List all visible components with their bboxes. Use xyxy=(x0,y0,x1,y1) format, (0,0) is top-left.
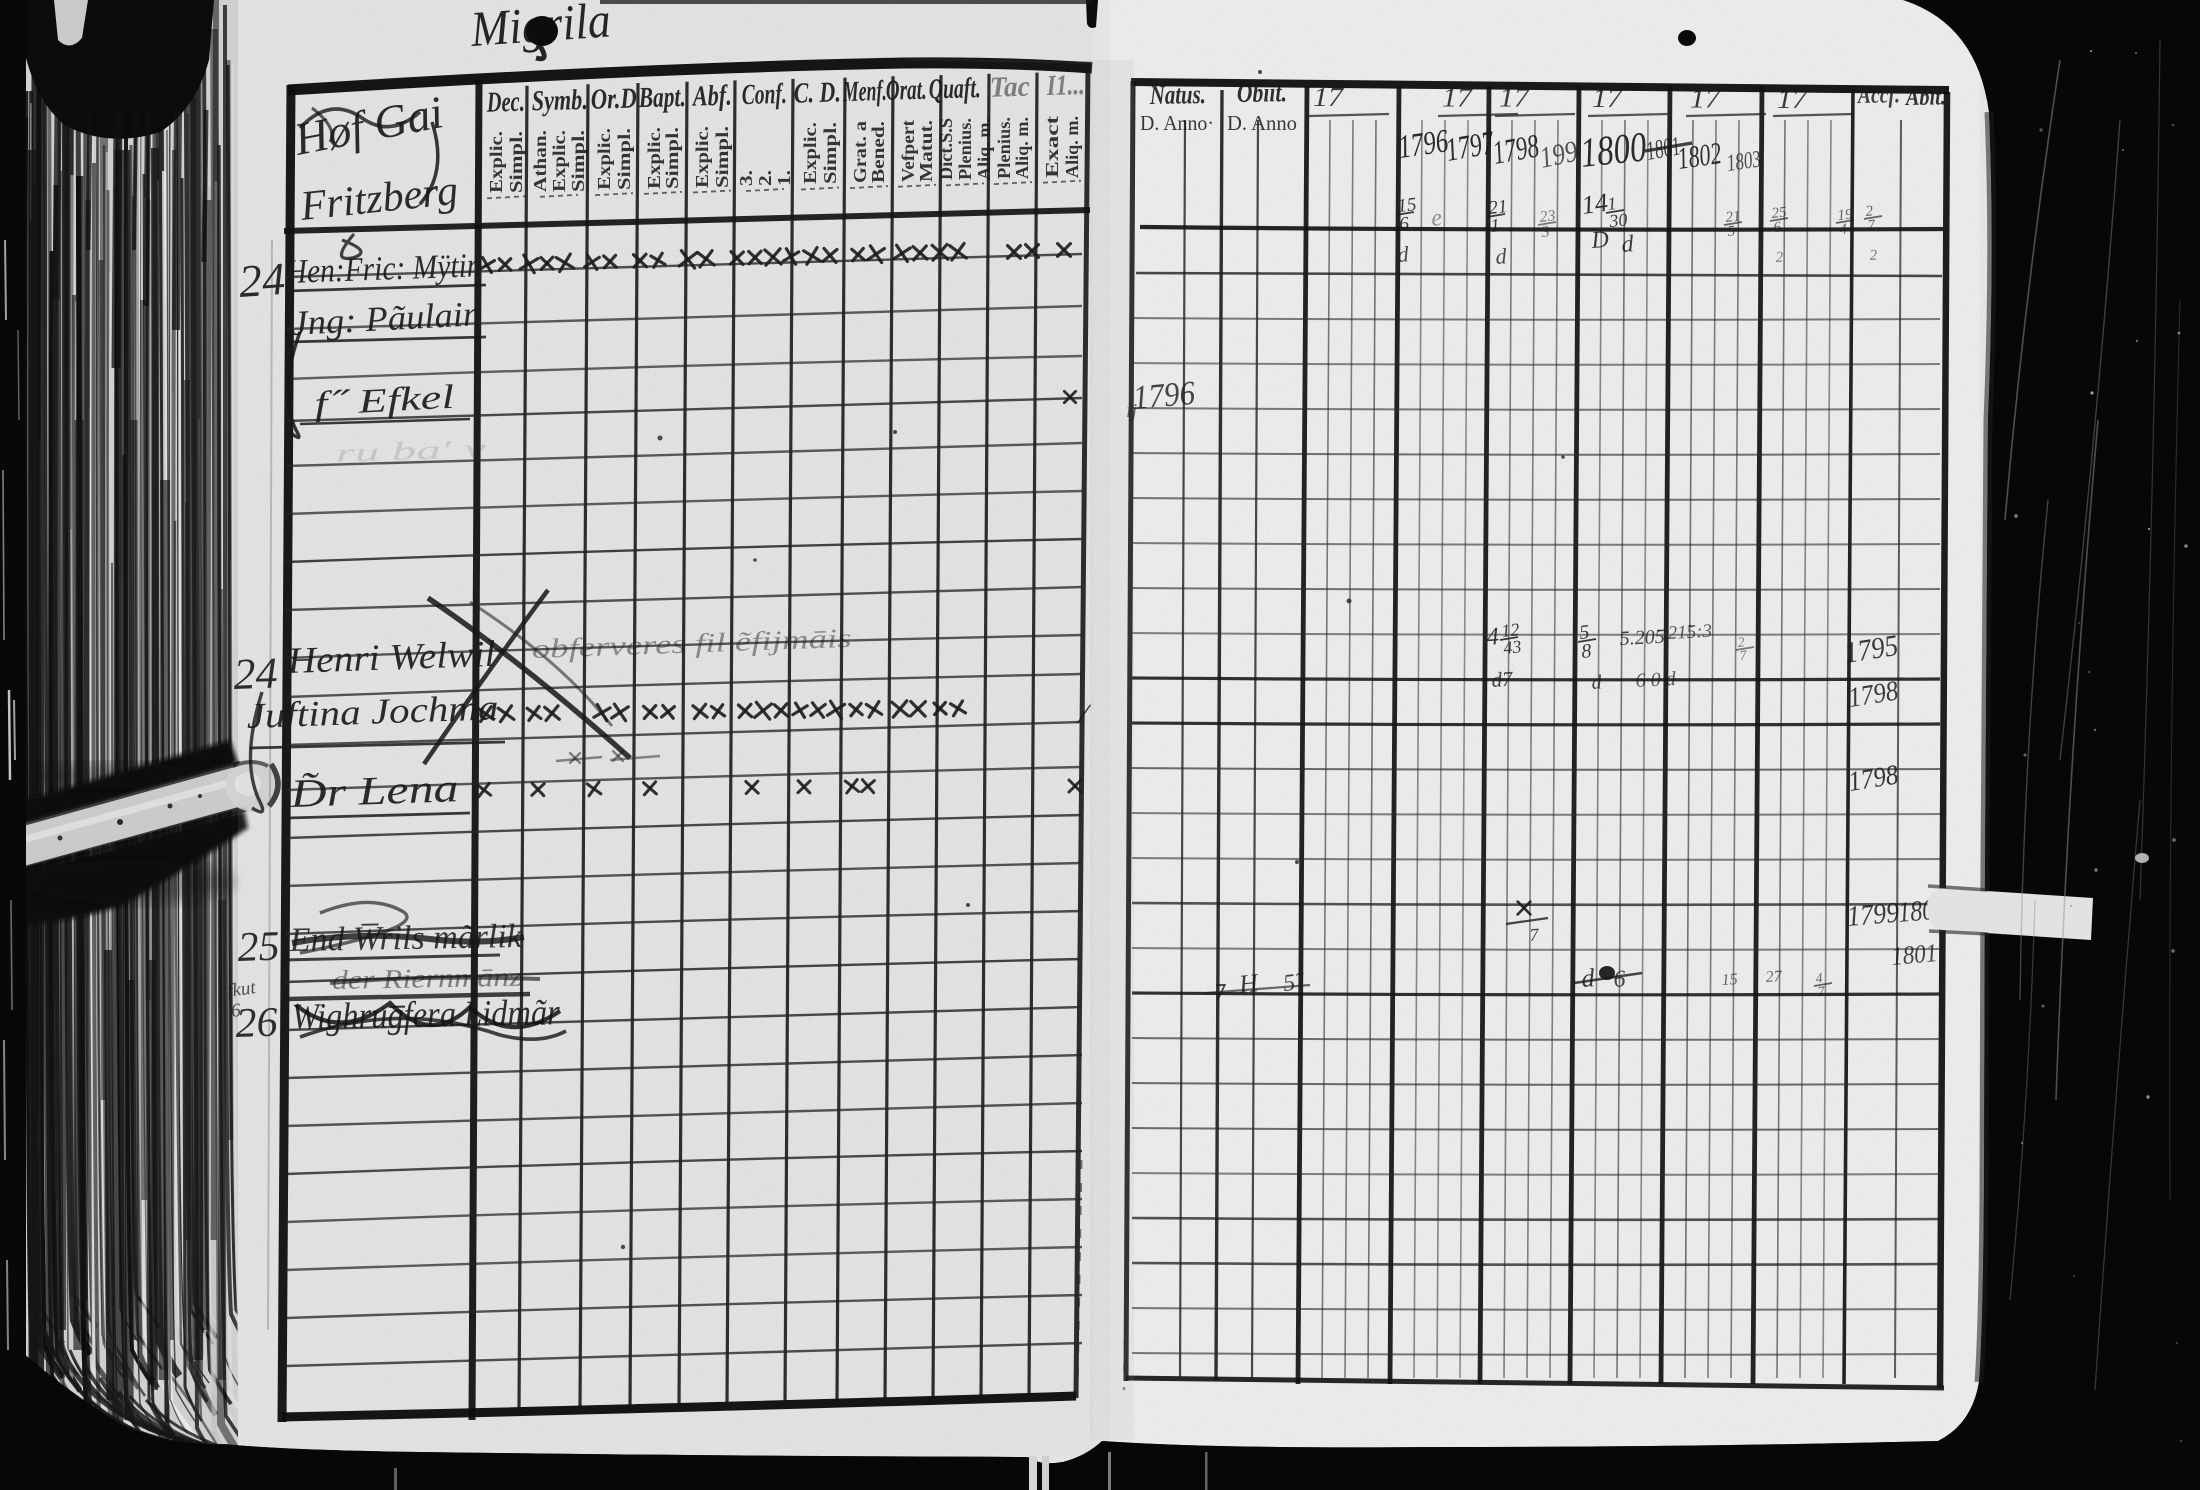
svg-text:Bened.: Bened. xyxy=(868,121,888,183)
svg-text:D̃r Lena: D̃r Lena xyxy=(288,765,459,816)
svg-text:Explic.: Explic. xyxy=(644,127,664,189)
svg-text:Obiit.: Obiit. xyxy=(1237,77,1288,108)
svg-text:Explic.: Explic. xyxy=(692,126,712,188)
svg-text:Aliq. m.: Aliq. m. xyxy=(1062,116,1082,178)
svg-text:Explic.: Explic. xyxy=(800,122,820,184)
svg-text:Explic.: Explic. xyxy=(594,128,614,190)
svg-text:Symb.: Symb. xyxy=(531,84,588,117)
svg-text:Dec.: Dec. xyxy=(486,86,526,119)
svg-text:5.20̇5: 5.20̇5 xyxy=(1619,626,1665,650)
svg-text:3: 3 xyxy=(1540,223,1551,241)
svg-text:Quaft.: Quaft. xyxy=(928,72,981,105)
svg-text:1800: 1800 xyxy=(1578,124,1648,177)
svg-text:21̃5:3: 21̃5:3 xyxy=(1667,621,1712,644)
svg-text:Abf.: Abf. xyxy=(691,80,732,113)
svg-text:6 0 d: 6 0 d xyxy=(1635,668,1677,692)
svg-text:25: 25 xyxy=(237,924,281,971)
svg-text:27: 27 xyxy=(1765,968,1783,986)
svg-text:Aliq. m.: Aliq. m. xyxy=(1012,117,1032,179)
svg-text:Aliq. m.: Aliq. m. xyxy=(974,118,994,180)
svg-text:Or.D: Or.D xyxy=(590,83,637,116)
svg-text:1801: 1801 xyxy=(1890,938,1938,971)
svg-text:Dict.S.S: Dict.S.S xyxy=(936,118,956,180)
svg-text:24: 24 xyxy=(233,648,279,699)
svg-text:C. D.: C. D. xyxy=(793,76,841,109)
svg-text:Natus.: Natus. xyxy=(1149,79,1206,110)
svg-text:Simpl.: Simpl. xyxy=(614,128,634,190)
svg-text:17: 17 xyxy=(1442,83,1474,113)
svg-text:Simpl.: Simpl. xyxy=(820,122,840,184)
svg-text:Vefpert: Vefpert xyxy=(898,120,918,182)
svg-text:D. Anno: D. Anno xyxy=(1227,111,1297,135)
svg-text:f ˝ Efkel: f ˝ Efkel xyxy=(313,379,455,423)
svg-text:Plenius.: Plenius. xyxy=(994,117,1014,179)
svg-text:Tac: Tac xyxy=(989,71,1030,104)
svg-text:Simpl.: Simpl. xyxy=(506,131,526,193)
svg-text:Bapt.: Bapt. xyxy=(638,81,687,114)
svg-text:17: 17 xyxy=(1690,84,1722,114)
svg-text:Wighrug̅fera Lidmãr: Wighrug̅fera Lidmãr xyxy=(291,992,560,1038)
svg-text:6: 6 xyxy=(1613,966,1627,993)
svg-text:Accf.: Accf. xyxy=(1856,82,1900,109)
svg-text:1803: 1803 xyxy=(1725,146,1762,176)
svg-text:Orat.: Orat. xyxy=(885,74,927,107)
svg-text:Hen:Fric: Mÿtin: Hen:Fric: Mÿtin xyxy=(284,247,482,291)
svg-text:Simpl.: Simpl. xyxy=(712,126,732,188)
svg-text:Simpl.: Simpl. xyxy=(662,127,682,189)
svg-text:1796: 1796 xyxy=(1396,123,1451,166)
svg-text:Plenius.: Plenius. xyxy=(955,118,975,180)
svg-text:1802: 1802 xyxy=(1675,135,1723,176)
svg-text:d7: d7 xyxy=(1491,666,1515,692)
svg-text:43: 43 xyxy=(1502,636,1522,658)
svg-text:Explic.: Explic. xyxy=(486,131,506,193)
svg-text:Menf.: Menf. xyxy=(842,75,887,108)
svg-text:3.: 3. xyxy=(736,170,756,186)
svg-text:17: 17 xyxy=(1313,82,1345,112)
svg-text:Exact: Exact xyxy=(1042,116,1062,178)
svg-text:1.: 1. xyxy=(774,170,794,186)
svg-text:26: 26 xyxy=(235,1000,279,1047)
svg-text:17: 17 xyxy=(1499,83,1531,113)
svg-text:2.: 2. xyxy=(755,170,775,186)
svg-text:Simpl.: Simpl. xyxy=(568,130,588,192)
svg-text:Abit.: Abit. xyxy=(1904,84,1946,111)
svg-text:ru ba′ v: ru ba′ v xyxy=(335,434,487,468)
svg-text:15: 15 xyxy=(1721,971,1738,989)
svg-text:14: 14 xyxy=(1580,188,1610,220)
svg-text:D: D xyxy=(1590,227,1610,254)
svg-text:Conf.: Conf. xyxy=(741,78,787,111)
svg-text:1799: 1799 xyxy=(1846,897,1901,933)
svg-text:D. Anno·: D. Anno· xyxy=(1140,111,1214,135)
svg-text:17: 17 xyxy=(1592,83,1624,113)
svg-text:I1...: I1... xyxy=(1046,69,1086,102)
svg-text:30: 30 xyxy=(1607,209,1628,231)
svg-text:1796: 1796 xyxy=(1131,375,1196,417)
svg-text:Explic.: Explic. xyxy=(549,130,569,192)
svg-text:Matut.: Matut. xyxy=(916,120,936,182)
svg-text:Grat. a: Grat. a xyxy=(850,121,870,183)
svg-text:17: 17 xyxy=(1777,84,1809,114)
svg-text:Henri Welwil: Henri Welwil xyxy=(286,634,496,682)
svg-text:Athan.: Athan. xyxy=(530,130,550,192)
svg-text:4: 4 xyxy=(1486,623,1500,651)
svg-text:fkut: fkut xyxy=(226,977,258,1002)
svg-text:24: 24 xyxy=(237,253,286,307)
